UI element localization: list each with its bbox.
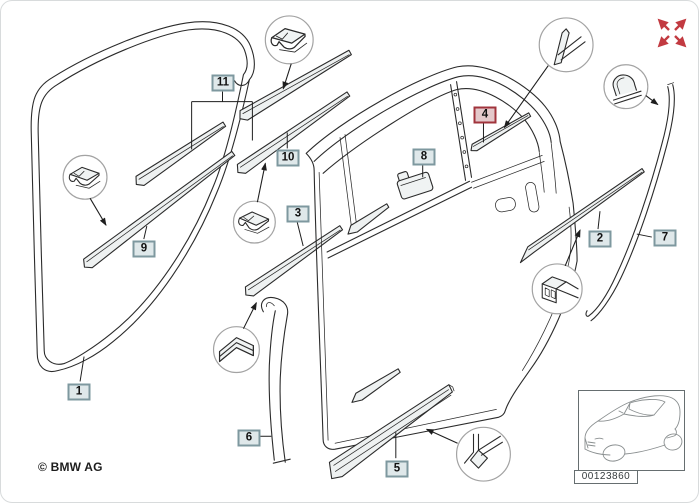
callout-7[interactable]: 7 [654,230,677,247]
callout-4-selected[interactable]: 4 [474,107,497,124]
vehicle-thumbnail [578,390,685,471]
callout-9[interactable]: 9 [133,241,156,258]
callout-6[interactable]: 6 [238,430,261,447]
copyright-text: © BMW AG [38,460,103,474]
part-channel-6[interactable] [262,297,291,463]
callout-8[interactable]: 8 [413,149,436,166]
parts-diagram-viewer: 1 2 3 4 5 6 7 8 9 10 11 © BMW AG 0 [0,0,699,503]
callout-3[interactable]: 3 [287,206,310,223]
part-cover-8[interactable] [394,165,433,200]
vehicle-sketch [579,391,684,470]
callout-10[interactable]: 10 [277,150,300,167]
fullscreen-expand-icon[interactable] [654,15,690,51]
callout-11[interactable]: 11 [212,75,235,92]
image-number: 00123860 [574,470,638,484]
callout-2[interactable]: 2 [589,231,612,248]
callout-1[interactable]: 1 [68,384,91,401]
callout-5[interactable]: 5 [386,461,409,478]
part-strip-11a[interactable] [133,122,230,189]
